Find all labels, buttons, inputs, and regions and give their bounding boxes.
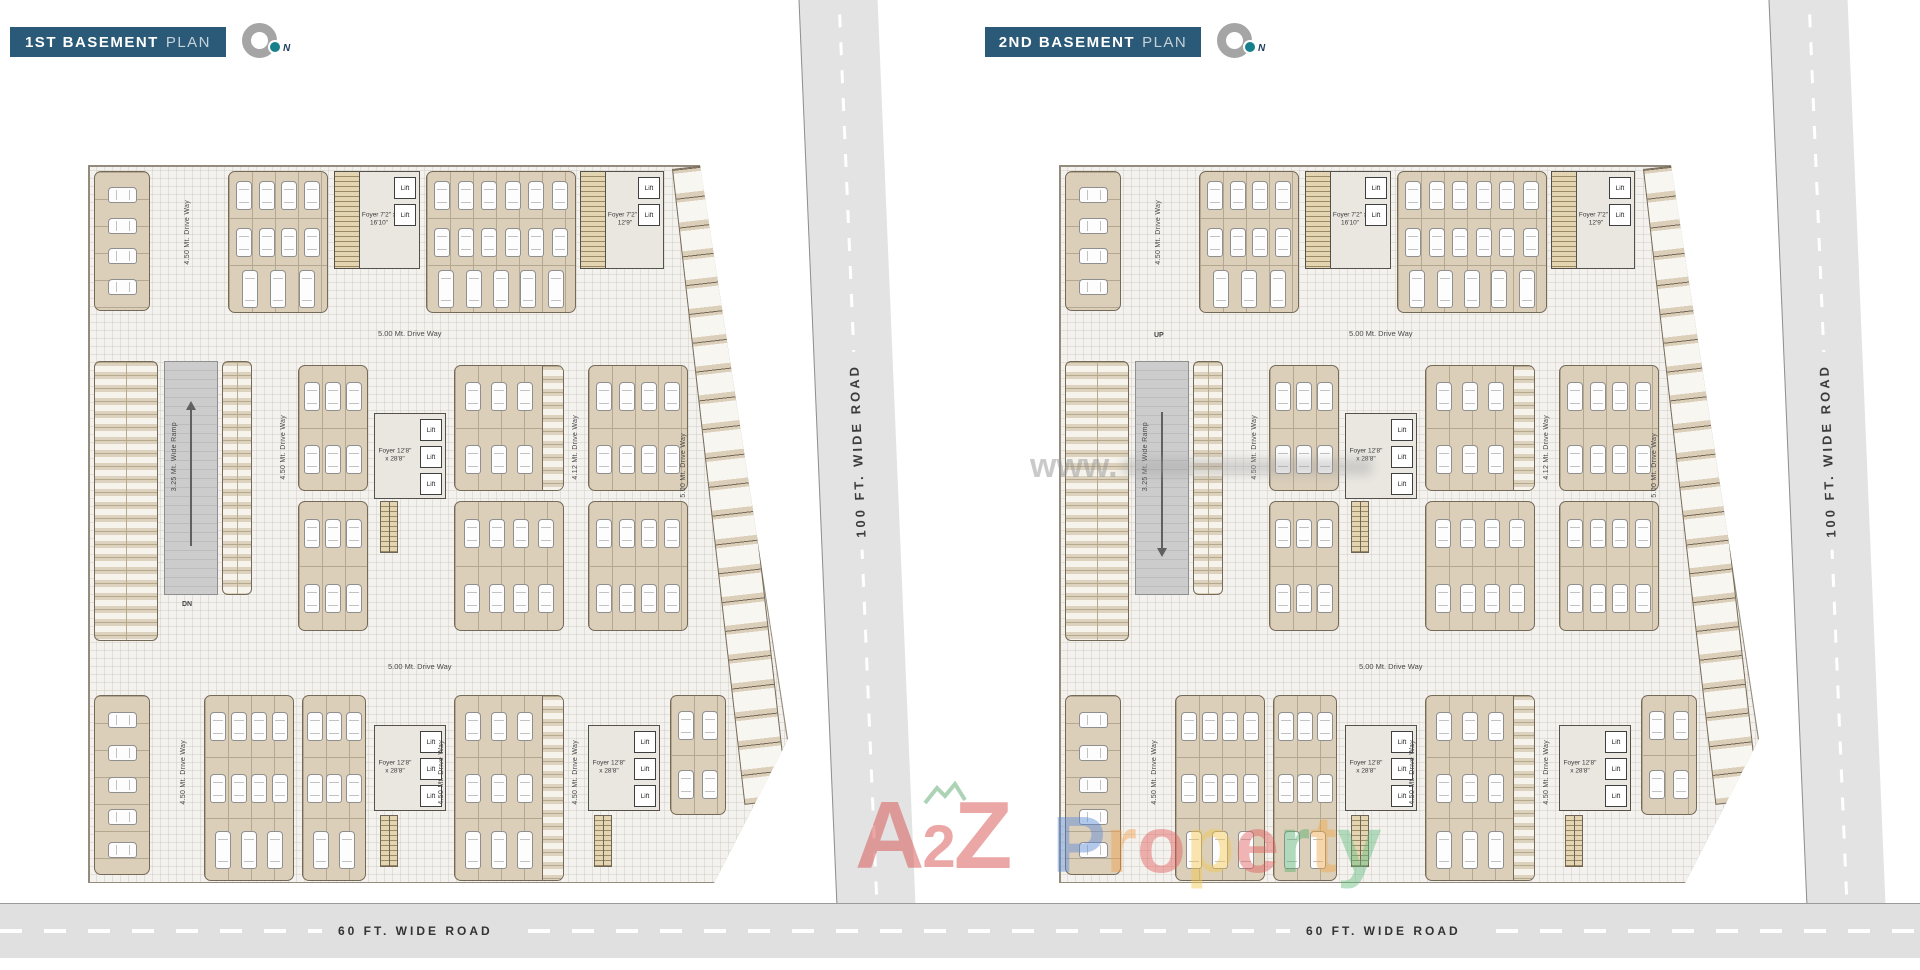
car-icon (619, 445, 635, 474)
car-icon (1270, 270, 1286, 308)
plan2-title-bar: 2ND BASEMENT PLAN (985, 27, 1201, 57)
car-icon (1181, 712, 1197, 741)
car-icon (1523, 181, 1539, 210)
plan1-title-bar: 1ST BASEMENT PLAN (10, 27, 226, 57)
driveway-label: 5.00 Mt. Drive Way (378, 329, 442, 338)
vertical-road-2: 100 FT. WIDE ROAD (1768, 0, 1886, 915)
car-icon (325, 445, 341, 474)
car-icon (517, 382, 533, 411)
lift-box: Lift (420, 473, 442, 495)
staircase (380, 501, 398, 553)
car-icon (538, 584, 554, 613)
car-icon (1612, 382, 1628, 411)
car-icon (641, 584, 657, 613)
car-icon (465, 774, 481, 803)
car-icon (491, 712, 507, 741)
driveway-label: 5.00 Mt. Drive Way (680, 433, 687, 498)
car-icon (108, 712, 137, 728)
brand-letter: o (1137, 813, 1186, 877)
car-icon (1435, 519, 1451, 548)
parking-block (94, 695, 150, 875)
car-icon (272, 712, 288, 741)
car-icon (267, 831, 283, 869)
plan-boundary-top (1059, 165, 1671, 167)
staircase (581, 172, 606, 268)
car-icon (1409, 270, 1425, 308)
parking-block (1397, 171, 1547, 313)
car-icon (210, 712, 226, 741)
car-icon (1079, 279, 1108, 295)
plan1-title-bold: 1ST BASEMENT (25, 34, 159, 51)
car-icon (1207, 228, 1223, 257)
car-icon (1612, 584, 1628, 613)
car-icon (1429, 181, 1445, 210)
car-icon (108, 187, 137, 203)
car-icon (434, 228, 450, 257)
car-icon (1213, 270, 1229, 308)
staircase (1552, 172, 1577, 268)
car-icon (1079, 777, 1108, 793)
car-icon (1567, 445, 1583, 474)
lift-box: Lift (634, 758, 656, 780)
car-icon (619, 382, 635, 411)
brand-letter: e (1235, 813, 1280, 877)
car-icon (1296, 519, 1312, 548)
driveway-label: 4.12 Mt. Drive Way (572, 415, 579, 480)
car-icon (1079, 218, 1108, 234)
ramp: 3.25 Mt. Wide Ramp (164, 361, 218, 595)
compass-icon: N (1217, 22, 1269, 62)
car-icon (236, 181, 252, 210)
car-icon (458, 228, 474, 257)
car-icon (1252, 228, 1268, 257)
foyer-label: Foyer 12'8" x 28'8" (377, 448, 413, 465)
car-icon (1317, 382, 1333, 411)
bike-parking-strip (94, 361, 158, 641)
driveway-label: 4.50 Mt. Drive Way (184, 200, 191, 265)
car-icon (1519, 270, 1535, 308)
driveway-label: 5.00 Mt. Drive Way (1651, 433, 1658, 498)
parking-block (1641, 695, 1697, 815)
lift-box: Lift (1609, 204, 1631, 226)
car-icon (458, 181, 474, 210)
car-icon (434, 181, 450, 210)
plan2-header: 2ND BASEMENT PLAN N (985, 22, 1269, 62)
plan-boundary-left (1059, 165, 1061, 883)
staircase (1351, 501, 1369, 553)
ramp-direction-label: UP (1154, 332, 1164, 339)
driveway-label: 4.50 Mt. Drive Way (438, 740, 445, 805)
car-icon (251, 774, 267, 803)
car-icon (259, 181, 275, 210)
brand-letter: r (1106, 813, 1137, 877)
vertical-road-1: 100 FT. WIDE ROAD (798, 0, 916, 915)
bottom-road: 60 FT. WIDE ROAD 60 FT. WIDE ROAD (0, 903, 1920, 958)
car-icon (1317, 712, 1333, 741)
car-icon (1476, 181, 1492, 210)
car-icon (513, 519, 529, 548)
staircase (335, 172, 360, 268)
car-icon (505, 228, 521, 257)
lift-box: Lift (1605, 731, 1627, 753)
road-label-60ft: 60 FT. WIDE ROAD (322, 920, 509, 942)
car-icon (1436, 445, 1452, 474)
car-icon (1252, 181, 1268, 210)
foyer-lift-core: Foyer 12'8" x 28'8" Lift Lift Lift (588, 725, 660, 811)
car-icon (1590, 519, 1606, 548)
foyer-lift-core: Foyer 12'8" x 28'8" Lift Lift Lift (1559, 725, 1631, 811)
car-icon (1462, 445, 1478, 474)
car-icon (517, 445, 533, 474)
car-icon (326, 774, 342, 803)
car-icon (242, 270, 258, 308)
car-icon (641, 445, 657, 474)
car-icon (466, 270, 482, 308)
ramp-direction-label: DN (182, 601, 192, 608)
car-icon (1230, 228, 1246, 257)
staircase (1565, 815, 1583, 867)
foyer-label: Foyer 12'8" x 28'8" (1348, 760, 1384, 777)
brand-letter: r (1279, 813, 1310, 877)
car-icon (259, 228, 275, 257)
brand-letter: y (1337, 813, 1382, 877)
car-icon (1612, 445, 1628, 474)
driveway-label: 4.50 Mt. Drive Way (1155, 200, 1162, 265)
lift-box: Lift (638, 204, 660, 226)
car-icon (1436, 712, 1452, 741)
car-icon (1567, 584, 1583, 613)
compass-dot-icon (1243, 40, 1257, 54)
parking-block (204, 695, 294, 881)
car-icon (1484, 584, 1500, 613)
car-icon (1296, 584, 1312, 613)
car-icon (346, 584, 362, 613)
bike-parking-strip (542, 366, 563, 490)
car-icon (596, 584, 612, 613)
road-center-dashes (0, 929, 1920, 933)
parking-block (426, 171, 576, 313)
car-icon (346, 519, 362, 548)
car-icon (1460, 519, 1476, 548)
floor-plan-basement-2: 4.50 Mt. Drive Way Foyer 7'2" x 16'10" L… (1059, 165, 1761, 883)
compass-dot-icon (268, 40, 282, 54)
parking-block (1269, 501, 1339, 631)
car-icon (1590, 584, 1606, 613)
car-icon (491, 382, 507, 411)
brand-letter-2: 2 (922, 817, 955, 877)
car-icon (438, 270, 454, 308)
car-icon (1296, 382, 1312, 411)
lift-box: Lift (634, 731, 656, 753)
car-icon (1590, 445, 1606, 474)
lift-box: Lift (394, 177, 416, 199)
car-icon (619, 584, 635, 613)
car-icon (1491, 270, 1507, 308)
lift-box: Lift (394, 204, 416, 226)
car-icon (307, 774, 323, 803)
car-icon (1488, 774, 1504, 803)
lift-box: Lift (1365, 177, 1387, 199)
car-icon (241, 831, 257, 869)
car-icon (1437, 270, 1453, 308)
page: 100 FT. WIDE ROAD 100 FT. WIDE ROAD 4.50… (0, 0, 1920, 970)
car-icon (664, 519, 680, 548)
foyer-lift-core: Foyer 7'2" x 16'10" Lift Lift (334, 171, 420, 269)
car-icon (272, 774, 288, 803)
car-icon (1202, 712, 1218, 741)
bike-parking-strip (222, 361, 252, 595)
plan-boundary-bottom (88, 882, 715, 884)
car-icon (538, 519, 554, 548)
car-icon (489, 519, 505, 548)
car-icon (664, 445, 680, 474)
car-icon (325, 382, 341, 411)
car-icon (513, 584, 529, 613)
car-icon (1275, 228, 1291, 257)
car-icon (1230, 181, 1246, 210)
parking-block (298, 501, 368, 631)
car-icon (108, 745, 137, 761)
parking-block (1559, 501, 1659, 631)
foyer-label: Foyer 12'8" x 28'8" (377, 760, 413, 777)
car-icon (108, 809, 137, 825)
brand-letter: t (1310, 813, 1337, 877)
car-icon (1523, 228, 1539, 257)
car-icon (281, 228, 297, 257)
car-icon (1612, 519, 1628, 548)
parking-block (1199, 171, 1299, 313)
lift-box: Lift (1391, 473, 1413, 495)
car-icon (231, 774, 247, 803)
car-icon (1462, 831, 1478, 869)
car-icon (270, 270, 286, 308)
car-icon (326, 712, 342, 741)
foyer-label: Foyer 7'2" x 16'10" (361, 212, 397, 229)
car-icon (505, 181, 521, 210)
watermark-www-text: www. (1030, 447, 1118, 486)
car-icon (664, 382, 680, 411)
car-icon (1462, 774, 1478, 803)
car-icon (1436, 774, 1452, 803)
parking-block (94, 171, 150, 311)
car-icon (1635, 445, 1651, 474)
car-icon (304, 519, 320, 548)
driveway-label: 5.00 Mt. Drive Way (1349, 329, 1413, 338)
driveway-label: 5.00 Mt. Drive Way (1359, 662, 1423, 671)
car-icon (1241, 270, 1257, 308)
car-icon (251, 712, 267, 741)
parking-block (1065, 171, 1121, 311)
parking-block (1425, 365, 1535, 491)
car-icon (641, 382, 657, 411)
car-icon (1567, 382, 1583, 411)
foyer-lift-core: Foyer 7'2" x 12'9" Lift Lift (580, 171, 664, 269)
brand-roof-icon (923, 781, 967, 807)
car-icon (1079, 745, 1108, 761)
plan-boundary-top (88, 165, 700, 167)
car-icon (596, 445, 612, 474)
car-icon (108, 248, 137, 264)
foyer-lift-core: Foyer 12'8" x 28'8" Lift Lift Lift (374, 413, 446, 499)
lift-box: Lift (1609, 177, 1631, 199)
brand-letter: P (1052, 813, 1105, 877)
parking-block (1425, 501, 1535, 631)
parking-block (302, 695, 366, 881)
car-icon (596, 382, 612, 411)
car-icon (1452, 228, 1468, 257)
car-icon (1499, 181, 1515, 210)
car-icon (304, 228, 320, 257)
brand-letter: p (1186, 813, 1235, 877)
car-icon (1275, 181, 1291, 210)
car-icon (1590, 382, 1606, 411)
car-icon (517, 712, 533, 741)
car-icon (1488, 382, 1504, 411)
lift-box: Lift (1605, 758, 1627, 780)
car-icon (339, 831, 355, 869)
car-icon (346, 445, 362, 474)
car-icon (619, 519, 635, 548)
car-icon (304, 584, 320, 613)
lift-box: Lift (1365, 204, 1387, 226)
foyer-lift-core: Foyer 7'2" x 16'10" Lift Lift (1305, 171, 1391, 269)
car-icon (528, 228, 544, 257)
driveway-label: 4.50 Mt. Drive Way (280, 415, 287, 480)
car-icon (1079, 248, 1108, 264)
parking-block (588, 365, 688, 491)
car-icon (108, 218, 137, 234)
plan1-title-light: PLAN (166, 34, 211, 51)
parking-block (454, 501, 564, 631)
parking-block (454, 365, 564, 491)
car-icon (313, 831, 329, 869)
car-icon (678, 770, 694, 799)
car-icon (465, 445, 481, 474)
car-icon (1222, 712, 1238, 741)
car-icon (1317, 519, 1333, 548)
car-icon (702, 711, 718, 740)
watermark-property: P r o p e r t y (1052, 813, 1381, 877)
car-icon (1635, 584, 1651, 613)
parking-block (228, 171, 328, 313)
parking-block (588, 501, 688, 631)
car-icon (1509, 584, 1525, 613)
car-icon (1275, 382, 1291, 411)
car-icon (1488, 712, 1504, 741)
car-icon (1476, 228, 1492, 257)
car-icon (281, 181, 297, 210)
car-icon (1317, 584, 1333, 613)
car-icon (1405, 228, 1421, 257)
car-icon (1635, 519, 1651, 548)
car-icon (1435, 584, 1451, 613)
car-icon (678, 711, 694, 740)
car-icon (1499, 228, 1515, 257)
floor-plan-basement-1: 4.50 Mt. Drive Way Foyer 7'2" x 16'10" L… (88, 165, 790, 883)
ramp-label: 3.25 Mt. Wide Ramp (171, 422, 178, 491)
lift-box: Lift (638, 177, 660, 199)
car-icon (236, 228, 252, 257)
plan2-title-bold: 2ND BASEMENT (999, 34, 1135, 51)
foyer-label: Foyer 7'2" x 16'10" (1332, 212, 1368, 229)
watermark-brand: A 2 Z P r o p e r t y (855, 795, 1381, 877)
parking-block (298, 365, 368, 491)
car-icon (1673, 711, 1689, 740)
car-icon (1275, 519, 1291, 548)
plan-boundary-left (88, 165, 90, 883)
car-icon (596, 519, 612, 548)
car-icon (1649, 770, 1665, 799)
car-icon (465, 831, 481, 869)
car-icon (1460, 584, 1476, 613)
car-icon (1436, 831, 1452, 869)
bike-parking-strip (1513, 366, 1534, 490)
lift-box: Lift (420, 446, 442, 468)
car-icon (1462, 382, 1478, 411)
car-icon (325, 519, 341, 548)
car-icon (231, 712, 247, 741)
car-icon (664, 584, 680, 613)
car-icon (491, 831, 507, 869)
car-icon (1464, 270, 1480, 308)
car-icon (520, 270, 536, 308)
lift-box: Lift (634, 785, 656, 807)
driveway-label: 4.12 Mt. Drive Way (1543, 415, 1550, 480)
car-icon (481, 181, 497, 210)
watermark-blur-bar (1122, 459, 1372, 475)
staircase (594, 815, 612, 867)
driveway-label: 4.50 Mt. Drive Way (180, 740, 187, 805)
car-icon (215, 831, 231, 869)
car-icon (493, 270, 509, 308)
lift-box: Lift (420, 419, 442, 441)
parking-block (1425, 695, 1535, 881)
car-icon (1436, 382, 1452, 411)
lift-box: Lift (1391, 446, 1413, 468)
parking-block (670, 695, 726, 815)
car-icon (517, 774, 533, 803)
car-icon (552, 228, 568, 257)
plan2-title-light: PLAN (1142, 34, 1187, 51)
watermark-a2z: A 2 Z (855, 795, 1012, 877)
lift-box: Lift (1605, 785, 1627, 807)
staircase (380, 815, 398, 867)
road-label-100ft: 100 FT. WIDE ROAD (843, 352, 872, 551)
lift-box: Lift (1391, 419, 1413, 441)
car-icon (465, 712, 481, 741)
car-icon (346, 382, 362, 411)
staircase (1306, 172, 1331, 268)
car-icon (1509, 519, 1525, 548)
car-icon (548, 270, 564, 308)
bike-parking-strip (1065, 361, 1129, 641)
car-icon (108, 777, 137, 793)
car-icon (1567, 519, 1583, 548)
car-icon (1488, 831, 1504, 869)
car-icon (1452, 181, 1468, 210)
car-icon (641, 519, 657, 548)
car-icon (517, 831, 533, 869)
parking-block (1559, 365, 1659, 491)
car-icon (307, 712, 323, 741)
car-icon (108, 842, 137, 858)
car-icon (304, 181, 320, 210)
car-icon (1278, 712, 1294, 741)
car-icon (1649, 711, 1665, 740)
car-icon (304, 382, 320, 411)
car-icon (1429, 228, 1445, 257)
car-icon (346, 712, 362, 741)
